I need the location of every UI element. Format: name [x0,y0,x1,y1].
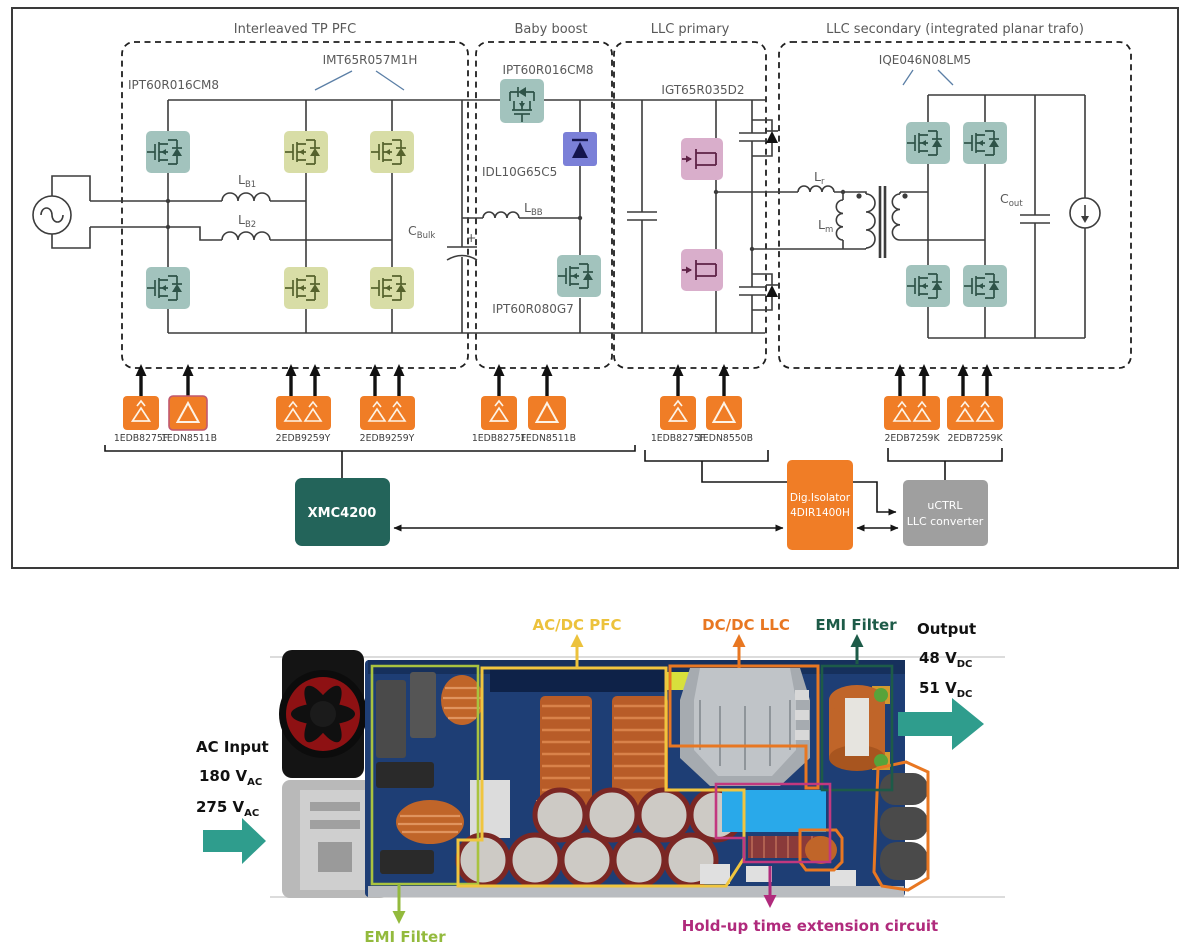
emi-top-annotation: EMI Filter [815,616,897,634]
uctrl-label-line2: LLC converter [907,515,984,528]
inductor-lm-icon [836,200,843,240]
part-label-sec-fet: IQE046N08LM5 [879,53,971,67]
pointer-lines-iqe [903,70,953,85]
llc-snubber-network [739,100,778,333]
driver-label: 1EDB8275F [472,433,526,444]
output-emi-toroid [829,685,890,771]
schematic: Interleaved TP PFC Baby boost LLC primar… [12,8,1178,568]
inductor-lb1-icon [222,193,270,201]
driver-label: 1EDN8511B [520,433,576,444]
gate-driver: 1EDN8550B [697,364,753,444]
pfc-leg1-high-mosfet-icon [146,131,190,173]
pfc-arrow-icon [571,634,584,647]
sec-fet-topright-icon [963,122,1007,164]
xmc4200-block: XMC4200 [295,478,390,546]
pointer-lines-imt [315,71,404,90]
gate-driver: 2EDB9259Y [276,364,331,444]
digital-isolator-block: Dig.Isolator 4DIR1400H [787,460,853,550]
gate-driver: 2EDB7259K [884,364,940,444]
pcb-photo: AC/DC PFC DC/DC LLC EMI Filter EMI Filte… [196,616,1005,946]
ac-input-voltage-1: 180 VAC [199,767,262,788]
uctrl-block: uCTRL LLC converter [903,480,988,546]
boost-bottom-mosfet-icon [557,255,601,297]
part-label-boost-bottom-fet: IPT60R080G7 [492,302,574,316]
ac-input-spec: AC Input 180 VAC 275 VAC [196,738,269,819]
inductor-lr-icon [798,186,834,192]
sec-fet-topleft-icon [906,122,950,164]
part-label-boost-top-fet: IPT60R016CM8 [503,63,594,77]
llc-aux-toroid [805,836,837,864]
section-label-llc-secondary: LLC secondary (integrated planar trafo) [826,22,1084,37]
planar-transformer-icon [856,186,907,258]
gate-driver: 2EDB9259Y [360,364,415,444]
driver-label: 2EDB9259Y [276,433,331,444]
part-label-llc-igbt: IGT65R035D2 [661,83,744,97]
uctrl-label-line1: uCTRL [927,499,963,512]
part-label-boost-diode: IDL10G65C5 [482,165,557,179]
emi-bottom-annotation: EMI Filter [364,928,446,946]
emi-top-arrow-icon [851,634,864,647]
inductor-lb2-icon [222,232,270,240]
gate-driver: 1EDB8275F [651,364,705,444]
control-wiring [105,445,1002,528]
ac-source-icon [33,196,71,234]
isolator-label-line1: Dig.Isolator [790,492,851,504]
gate-driver: 1EDB8275F [114,364,168,444]
sec-fet-bottomleft-icon [906,265,950,307]
gate-driver: 1EDB8275F [472,364,526,444]
driver-label: 1EDN8511B [161,433,217,444]
label-cout: Cout [1000,191,1023,209]
pfc-annotation: AC/DC PFC [532,616,621,634]
power-supply-reference-design-figure: Interleaved TP PFC Baby boost LLC primar… [0,0,1200,948]
board-bottom-edge [368,886,904,897]
section-label-llc-primary: LLC primary [651,22,730,37]
junction-dots [166,190,845,251]
label-lb1: LB1 [238,172,256,190]
output-capacitor-icon [1020,215,1050,223]
llc-high-igbt-icon [681,138,723,180]
xmc4200-label: XMC4200 [308,506,377,521]
driver-label: 2EDB7259K [947,433,1003,444]
holdup-arrow-icon [764,895,777,908]
llc-input-capacitor-icon [627,212,657,220]
label-lb2: LB2 [238,212,256,230]
llc-arrow-icon [733,634,746,647]
ac-input-voltage-2: 275 VAC [196,798,259,819]
gate-driver: 2EDB7259K [947,364,1003,444]
label-cbulk: CBulk [408,223,435,241]
label-lbb: LBB [524,200,543,218]
ac-input-title: AC Input [196,738,269,756]
driver-label: 2EDB7259K [884,433,940,444]
section-label-baby-boost: Baby boost [515,22,588,37]
pfc-leg1-low-mosfet-icon [146,267,190,309]
snubber-diode-icon [766,285,778,297]
output-title: Output [917,620,976,638]
isolator-label-line2: 4DIR1400H [790,507,850,519]
output-voltage-2: 51 VDC [919,679,972,700]
driver-label: 2EDB9259Y [360,433,415,444]
current-source-icon [1070,198,1100,228]
sec-fet-bottomright-icon [963,265,1007,307]
board-top-slot [490,668,668,692]
cbulk-plus-sign: + [466,230,476,245]
part-label-pfc-fast-leg: IMT65R057M1H [323,53,418,67]
section-box-llc-secondary [779,42,1131,368]
gate-driver: 1EDN8511B [520,364,576,444]
llc-annotation: DC/DC LLC [702,616,790,634]
label-lr: Lr [814,169,825,187]
emi-bottom-arrow-icon [393,911,406,924]
holdup-annotation: Hold-up time extension circuit [682,917,938,935]
pfc-leg2-low-mosfet-icon [284,267,328,309]
boost-diode-icon [563,132,597,166]
label-lm: Lm [818,217,833,235]
driver-label: 1EDB8275F [114,433,168,444]
inductor-lbb-icon [483,212,519,218]
cooling-fan [279,650,367,778]
output-flow-arrow-icon [898,698,984,750]
gate-driver-row: 1EDB8275F 1EDN8511B 2EDB9259Y 2E [114,364,1004,444]
snubber-diode-icon [766,131,778,143]
llc-heatsink [680,668,810,786]
llc-low-igbt-icon [681,249,723,291]
gate-driver: 1EDN8511B [161,364,217,444]
ac-input-flow-arrow-icon [203,818,266,864]
section-label-interleaved-tp-pfc: Interleaved TP PFC [234,22,356,37]
pfc-leg3-low-mosfet-icon [370,267,414,309]
part-label-pfc-first-leg: IPT60R016CM8 [128,78,219,92]
boost-top-mosfet-icon [500,79,544,123]
pfc-leg3-high-mosfet-icon [370,131,414,173]
driver-label: 1EDN8550B [697,433,753,444]
output-voltage-1: 48 VDC [919,649,972,670]
figure-canvas: Interleaved TP PFC Baby boost LLC primar… [0,0,1200,948]
output-spec: Output 48 VDC 51 VDC [917,620,976,700]
pfc-leg2-high-mosfet-icon [284,131,328,173]
